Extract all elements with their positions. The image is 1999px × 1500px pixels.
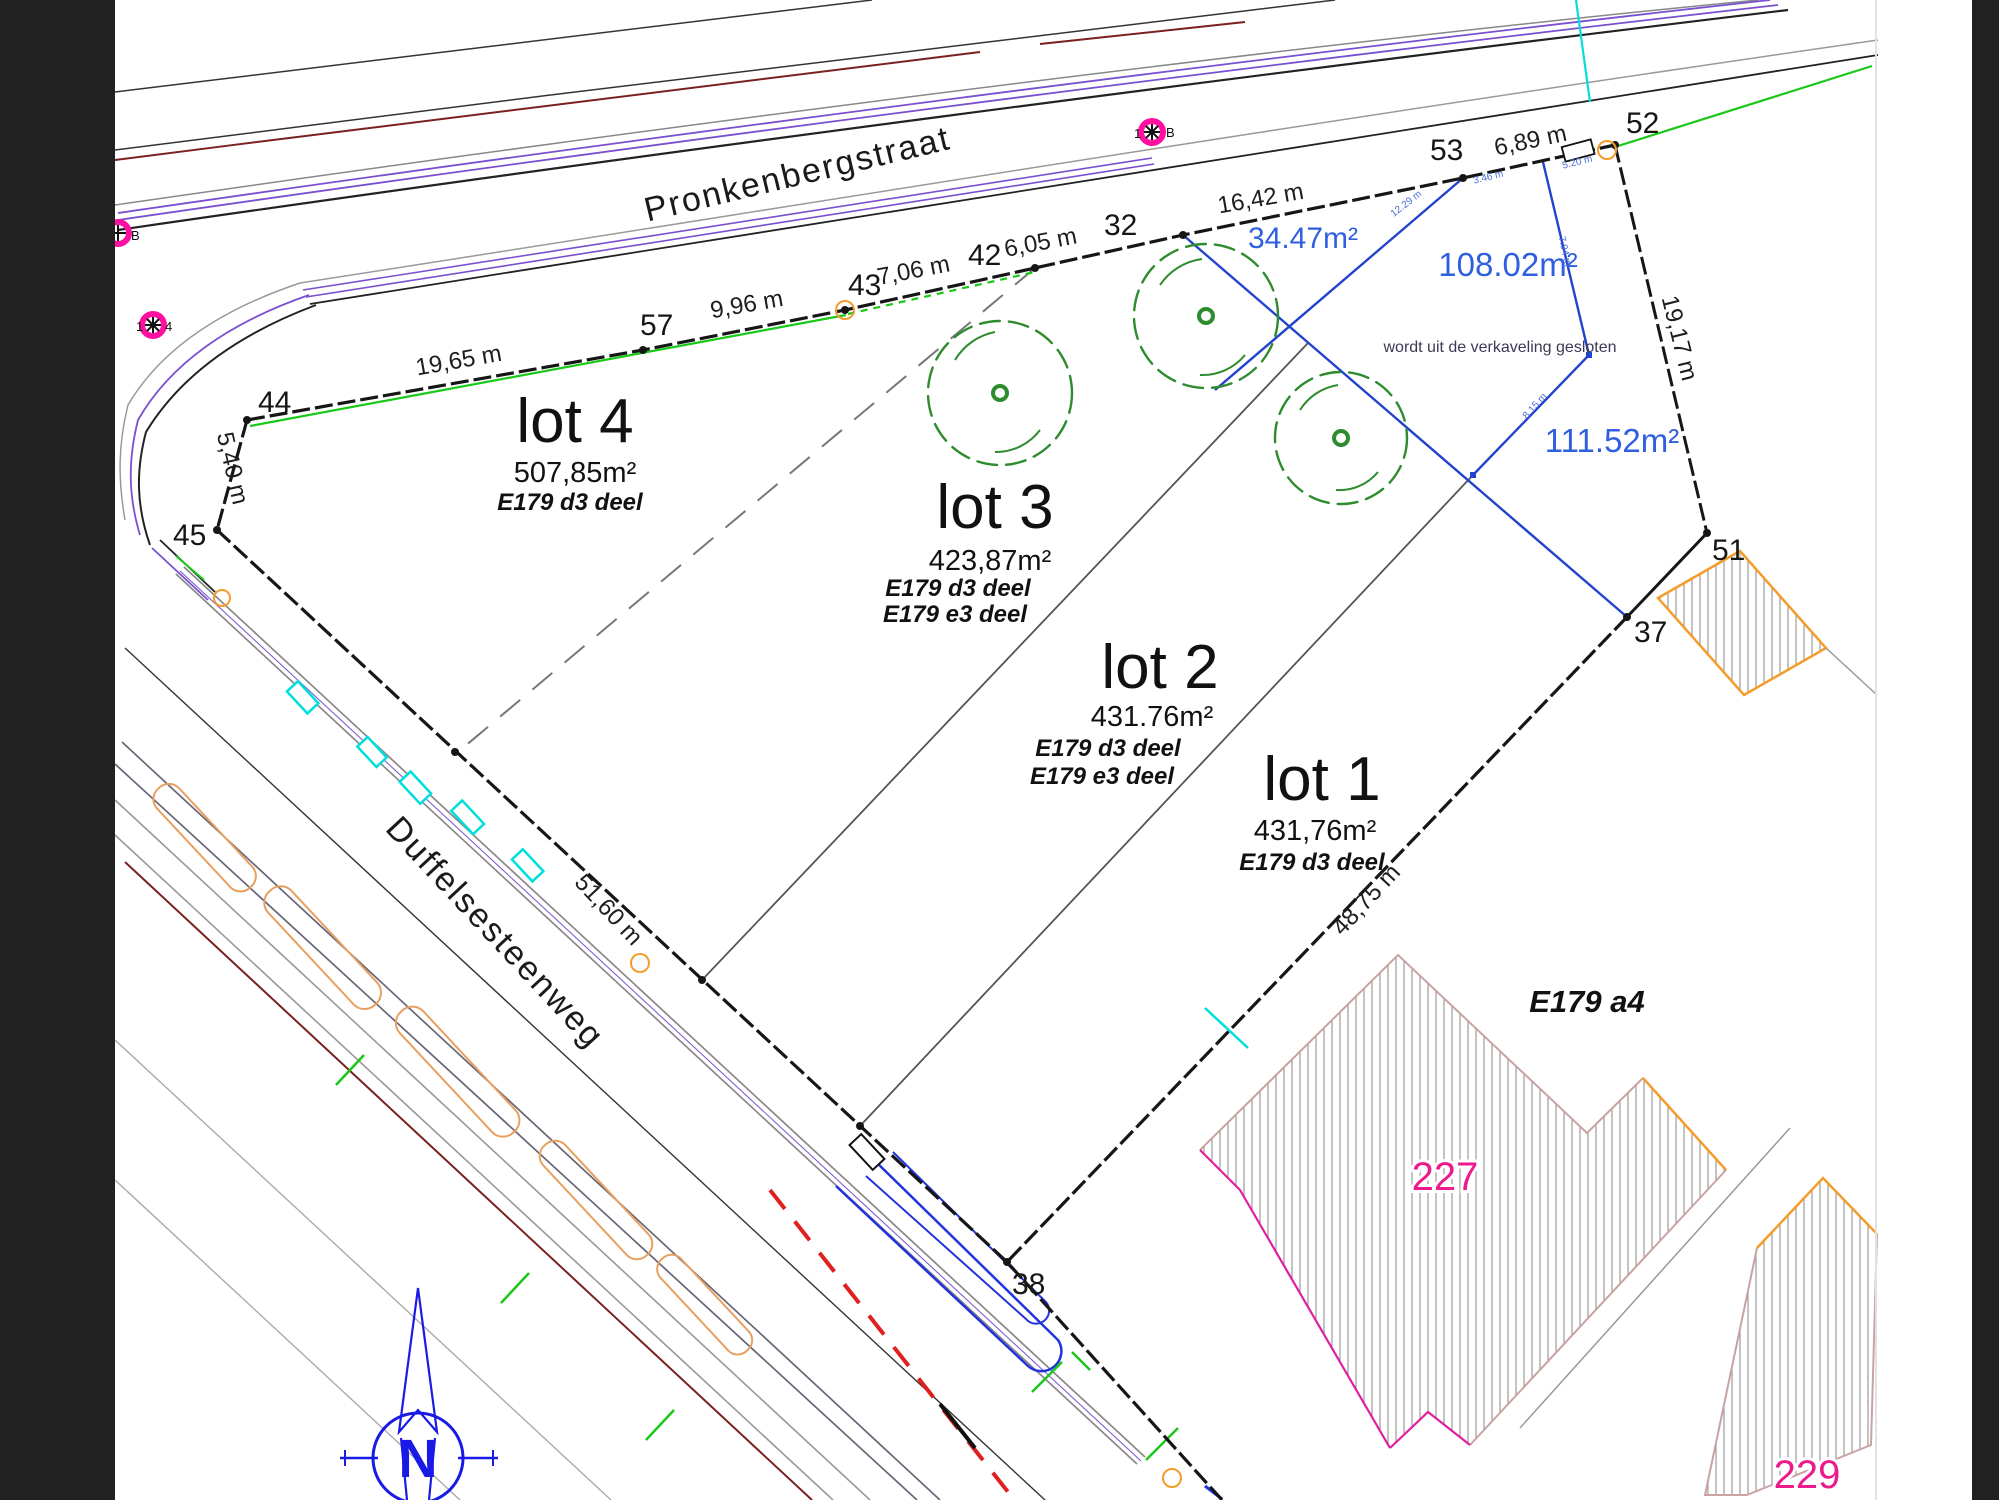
measurement: 6,89 m [1492, 120, 1569, 162]
right-letterbox-bar [1972, 0, 1999, 1500]
lot-area: 507,85m² [514, 457, 637, 489]
tree [928, 321, 1072, 465]
measurement: 6,05 m [1002, 222, 1079, 263]
road-duffelsesteenweg [115, 567, 1222, 1500]
point-label-44: 44 [258, 386, 291, 419]
point-label-38: 38 [1012, 1268, 1045, 1301]
lot-parcel: E179 d3 deel [1035, 735, 1182, 762]
green-tick [501, 1273, 529, 1303]
tree [1134, 244, 1278, 388]
black-dash-segment [940, 1404, 975, 1448]
cyan-boundary-overlay [1205, 1008, 1248, 1048]
left-letterbox-bar [0, 0, 115, 1500]
point-label-57: 57 [640, 309, 673, 342]
lot-area: 423,87m² [929, 545, 1052, 577]
road-centerline [125, 648, 1045, 1500]
point-label-51: 51 [1712, 534, 1745, 567]
lot-name: lot 2 [1101, 633, 1218, 702]
measurement: 9,96 m [708, 285, 785, 324]
point-label-42: 42 [968, 239, 1001, 272]
lot-area: 431.76m² [1091, 701, 1214, 733]
measurement: 7,06 m [875, 250, 952, 291]
orange-point-circle [1598, 141, 1616, 159]
cyan-utility-line [1576, 0, 1590, 102]
excluded-area: 108.02m² [1438, 246, 1577, 283]
marker-text: 4 [165, 319, 172, 334]
orange-manhole [631, 954, 649, 972]
north-label: N [399, 1429, 438, 1489]
house-number-229: 229 [1774, 1453, 1841, 1497]
marker-text: 1 [1134, 126, 1141, 141]
point-label-37: 37 [1634, 616, 1667, 649]
building-near-51 [1658, 551, 1826, 695]
lot-parcel: E179 e3 deel [883, 601, 1028, 628]
survey-marker-lower-left [142, 314, 164, 336]
survey-marker-top [1141, 121, 1163, 143]
lot-1-label: lot 1 431,76m² E179 d3 deel [1239, 745, 1386, 876]
boundary-maroon-line [125, 862, 812, 1500]
lot-3-label: lot 3 423,87m² E179 d3 deel E179 e3 deel [883, 473, 1054, 628]
lot-name: lot 3 [936, 473, 1053, 542]
measurement: 19,17 m [1656, 293, 1703, 384]
point-label-45: 45 [173, 519, 206, 552]
blue-drain [836, 1152, 1222, 1499]
measurement: 19,65 m [414, 340, 504, 382]
marker-text: B [1166, 125, 1175, 140]
measurement: 51,60 m [569, 869, 648, 951]
sub-measurement: 8.15 m [1521, 391, 1550, 421]
point-label-52: 52 [1626, 107, 1659, 140]
orange-manhole [1163, 1469, 1181, 1487]
trees [928, 244, 1407, 504]
cadastral-plan-canvas: N Pronkenbergstraat Duffelsesteenweg lot… [0, 0, 1999, 1500]
lot-name: lot 4 [516, 387, 633, 456]
street-name-duffelsesteenweg: Duffelsesteenweg [378, 809, 612, 1056]
lot-area: 431,76m² [1254, 815, 1377, 847]
tree [1275, 372, 1407, 504]
point-label-53: 53 [1430, 134, 1463, 167]
culvert-symbol [850, 1134, 885, 1170]
building-227 [1200, 955, 1726, 1448]
lot-parcel: E179 d3 deel [1239, 849, 1386, 876]
excluded-note: wordt uit de verkaveling gesloten [1382, 339, 1616, 356]
parcel-label-e179a4: E179 a4 [1529, 984, 1645, 1019]
green-tick [646, 1410, 674, 1440]
lot-4-label: lot 4 507,85m² E179 d3 deel [497, 387, 644, 516]
buildings [1200, 551, 1877, 1495]
marker-text: B [131, 228, 140, 243]
lot-parcel: E179 e3 deel [1030, 763, 1175, 790]
house-number-227: 227 [1412, 1155, 1479, 1199]
excluded-area: 111.52m² [1545, 422, 1680, 459]
green-tick [1072, 1352, 1090, 1370]
point-label-32: 32 [1104, 209, 1137, 242]
building-229 [1705, 1178, 1877, 1495]
lot-parcel: E179 d3 deel [497, 489, 644, 516]
measurement: 5,40 m [211, 430, 254, 508]
plan-drawing: N Pronkenbergstraat Duffelsesteenweg lot… [0, 0, 1999, 1500]
lot-2-label: lot 2 431.76m² E179 d3 deel E179 e3 deel [1030, 633, 1219, 790]
marker-text: 1 [136, 319, 143, 334]
sub-measurement: 3.46 m [1472, 169, 1504, 187]
lot-parcel: E179 d3 deel [885, 575, 1032, 602]
lot-name: lot 1 [1263, 745, 1380, 814]
excluded-area: 34.47m² [1248, 222, 1358, 255]
